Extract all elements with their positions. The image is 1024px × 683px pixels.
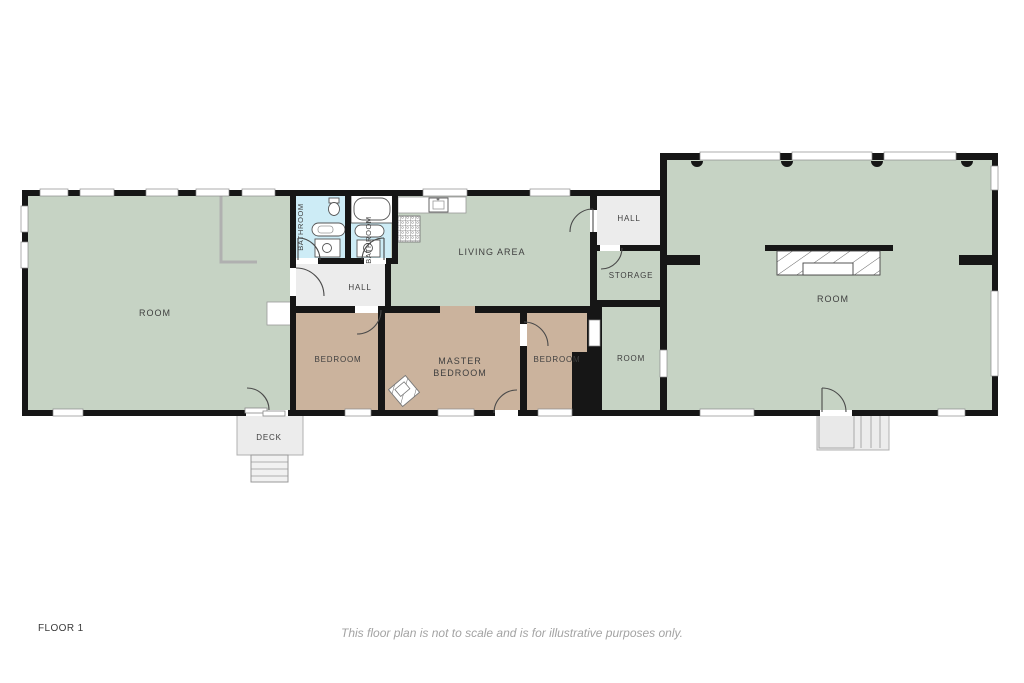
room-right-floor <box>667 158 992 412</box>
window <box>146 189 178 196</box>
window <box>345 409 371 416</box>
bathroom-1-label: BATHROOM <box>296 203 305 251</box>
floor-label: FLOOR 1 <box>38 623 84 634</box>
window <box>80 189 114 196</box>
window <box>53 409 83 416</box>
right-exterior-stairs <box>817 413 889 450</box>
room-fills <box>24 158 992 414</box>
window <box>700 152 780 160</box>
window <box>538 409 572 416</box>
toilet-bowl-icon <box>329 203 340 216</box>
storage-label: STORAGE <box>609 271 654 280</box>
window <box>884 152 956 160</box>
window <box>196 189 229 196</box>
window <box>21 242 28 268</box>
master-bedroom-label-line1: MASTER <box>438 356 482 366</box>
disclaimer-text: This floor plan is not to scale and is f… <box>341 626 683 640</box>
bathtub-oval-icon <box>312 223 345 236</box>
hall-2-label: HALL <box>617 214 640 223</box>
window <box>991 166 998 190</box>
window <box>242 189 275 196</box>
window <box>991 291 998 376</box>
wall-niche <box>267 302 292 325</box>
living-area-label: LIVING AREA <box>458 247 525 257</box>
bathroom-2-label: BATHROOM <box>364 216 373 264</box>
room-left-floor <box>24 192 292 414</box>
window <box>40 189 68 196</box>
hall-1-floor <box>296 262 385 308</box>
window <box>438 409 474 416</box>
room-left-label: ROOM <box>139 308 171 318</box>
bedroom-2-label: BEDROOM <box>534 355 581 364</box>
kitchen-faucet <box>437 198 440 201</box>
deck-stairs <box>251 455 288 482</box>
sliding-door <box>263 411 285 416</box>
window <box>938 409 965 416</box>
floor-plan-drawing: ROOM BATHROOM BATHROOM HALL LIVING AREA … <box>0 0 1024 683</box>
hall-1-label: HALL <box>348 283 371 292</box>
window <box>589 320 600 346</box>
master-bedroom-label-line2: BEDROOM <box>433 368 487 378</box>
vanity-basin <box>323 244 332 253</box>
stairs-landing <box>819 415 854 448</box>
window <box>530 189 570 196</box>
window <box>423 189 467 196</box>
room-middle-label: ROOM <box>617 354 645 363</box>
window <box>792 152 872 160</box>
window <box>21 206 28 232</box>
stove-icon <box>398 216 420 242</box>
fireplace-back-wall <box>765 245 893 251</box>
room-right-label: ROOM <box>817 294 849 304</box>
fireplace-firebox <box>803 263 853 275</box>
deck <box>237 414 303 482</box>
bedroom-1-label: BEDROOM <box>315 355 362 364</box>
window <box>660 350 667 377</box>
window <box>700 409 754 416</box>
fireplace <box>765 245 893 275</box>
floor-plan-page: ROOM BATHROOM BATHROOM HALL LIVING AREA … <box>0 0 1024 683</box>
deck-label: DECK <box>256 433 281 442</box>
